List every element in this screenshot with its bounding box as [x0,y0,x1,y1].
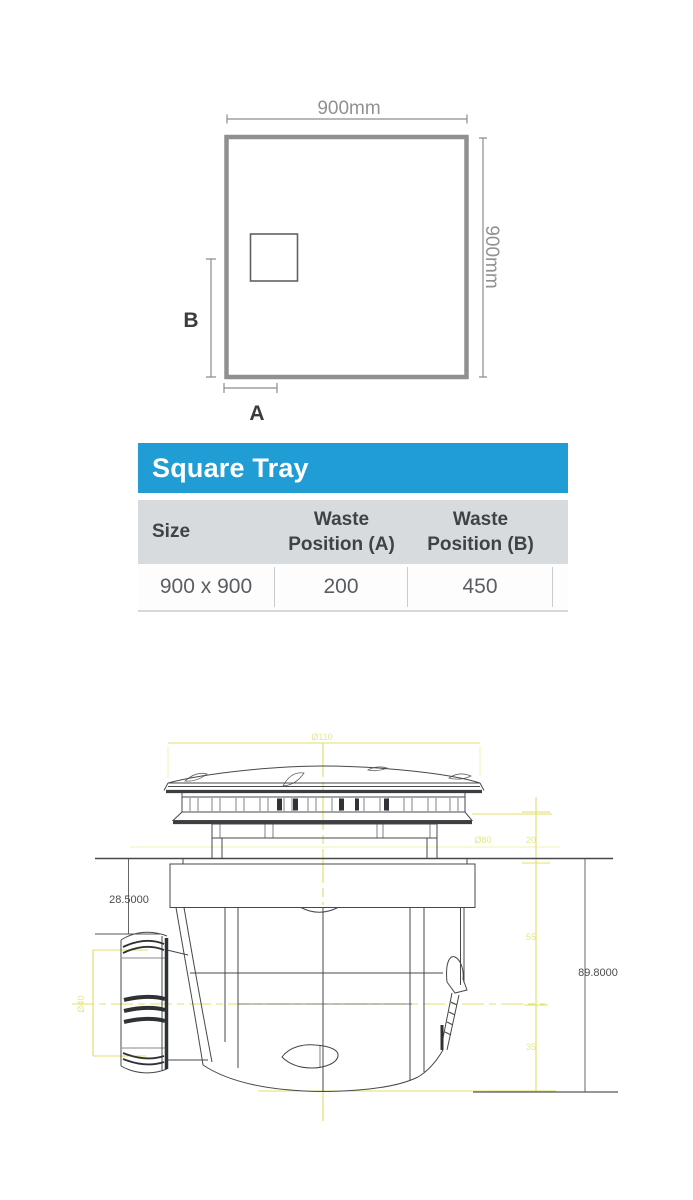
header-waste-a-line2: Position (A) [275,532,408,557]
cad-cap-assembly [164,766,484,858]
spec-table-gap [138,493,568,500]
cad-slot-fills [277,799,389,811]
cad-mid-diameter-label: Ø80 [474,835,491,845]
dimension-b-label: B [183,309,198,332]
spec-table-header-row: Size Waste Position (A) Waste Position (… [138,500,568,564]
cad-segment-bottom-label: 35 [526,1042,536,1052]
cad-outlet-diameter-label: Ø40 [76,995,86,1012]
cad-slot-lines [190,798,458,811]
cell-size: 900 x 900 [138,567,275,607]
cad-outlet-nut [121,932,167,1073]
cad-segment-top-label: 20 [526,835,536,845]
cad-right-height-value: 89.8000 [578,967,618,979]
waste-outlet-square [251,234,298,281]
dimension-b: B [183,259,216,377]
cell-waste-a: 200 [275,567,408,607]
header-size: Size [138,521,275,543]
cad-top-diameter-label: Ø110 [311,732,332,742]
tray-height-label: 900mm [481,225,502,288]
cad-dimension-right: 89.8000 [473,859,618,1093]
tray-width-dimension: 900mm [227,98,467,124]
cad-segment-mid-label: 55 [526,932,536,942]
cad-dimension-left: 28.5000 [95,859,160,934]
header-waste-a: Waste Position (A) [275,507,408,557]
page: 900mm 900mm B A [0,0,693,1200]
spec-table: Square Tray Size Waste Position (A) Wast… [138,443,568,612]
header-waste-a-line1: Waste [275,507,408,532]
tray-plan-diagram: 900mm 900mm B A [183,98,502,425]
header-waste-b-line2: Position (B) [408,532,553,557]
dimension-a-label: A [249,402,264,425]
spec-table-title: Square Tray [138,443,568,493]
waste-cad-drawing: Ø110 Ø80 20 55 35 Ø40 [72,732,618,1121]
cad-left-height-value: 28.5000 [109,894,149,906]
header-waste-b: Waste Position (B) [408,507,553,557]
dimension-a: A [224,383,277,425]
tray-height-dimension: 900mm [479,138,502,377]
cell-waste-b: 450 [408,567,553,607]
cad-body [167,859,475,1092]
tray-width-label: 900mm [317,98,380,119]
header-waste-b-line1: Waste [408,507,553,532]
spec-table-data-row: 900 x 900 200 450 [138,564,568,612]
